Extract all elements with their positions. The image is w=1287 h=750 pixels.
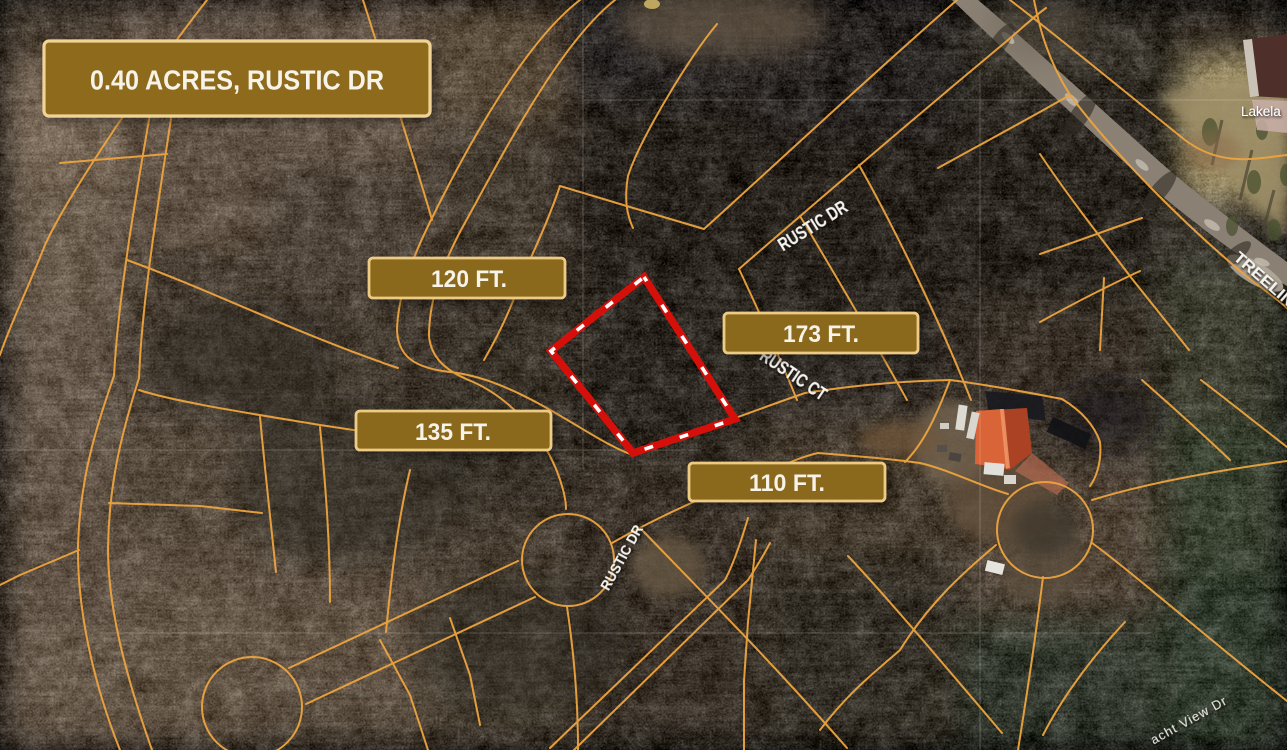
svg-text:135 FT.: 135 FT. (415, 419, 491, 446)
svg-text:110 FT.: 110 FT. (749, 470, 825, 497)
svg-text:0.40 ACRES, RUSTIC DR: 0.40 ACRES, RUSTIC DR (90, 65, 384, 96)
svg-text:120 FT.: 120 FT. (431, 266, 507, 293)
svg-text:Lakela: Lakela (1241, 104, 1281, 119)
svg-text:173 FT.: 173 FT. (783, 321, 859, 348)
